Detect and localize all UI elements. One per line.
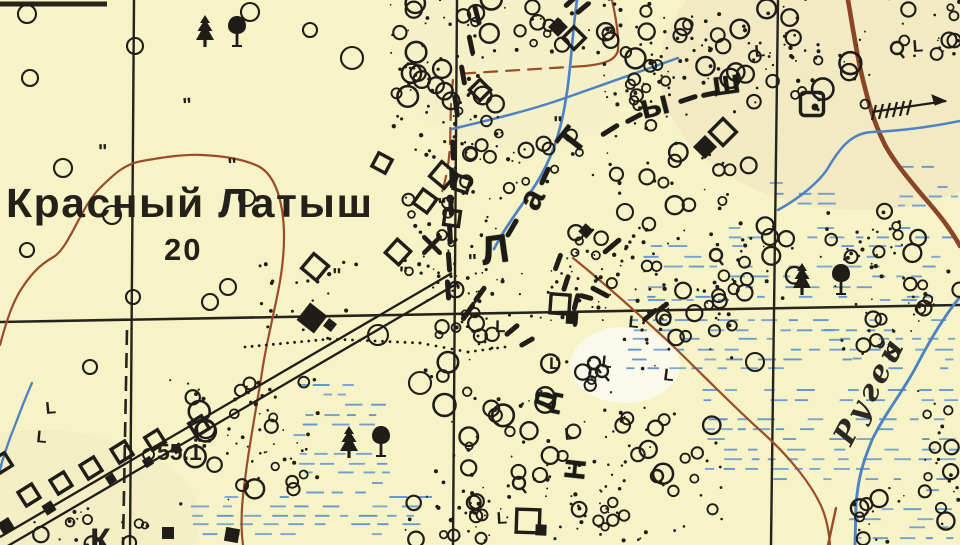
spread-letter-l: Л (478, 228, 511, 272)
svg-text:": " (98, 141, 108, 163)
topographic-map: LLLLLLLLLLL"""""""" Красный Латыш 20 55.… (0, 0, 960, 545)
spread-letter-sh: ш (710, 64, 743, 102)
svg-text:": " (227, 154, 238, 177)
svg-text:L: L (563, 424, 575, 444)
svg-text:": " (437, 194, 448, 217)
svg-text:L: L (754, 41, 766, 61)
svg-text:L: L (912, 36, 924, 56)
svg-text:": " (398, 263, 409, 286)
partial-settlement-label: К (90, 524, 111, 545)
settlement-name-label: Красный Латыш (6, 183, 374, 224)
svg-text:L: L (496, 508, 508, 528)
elevation-label: 55.1 (142, 441, 202, 464)
settlement-number-label: 20 (164, 234, 202, 265)
svg-text:L: L (549, 354, 560, 373)
svg-text:L: L (36, 427, 48, 447)
svg-text:": " (182, 94, 193, 117)
svg-text:L: L (45, 398, 57, 418)
svg-text:L: L (495, 317, 506, 336)
spread-letter-n: Н (561, 458, 592, 482)
svg-text:L: L (628, 312, 640, 332)
svg-text:": " (332, 265, 342, 287)
svg-text:": " (467, 251, 477, 273)
elevation-point-icon (142, 448, 155, 461)
